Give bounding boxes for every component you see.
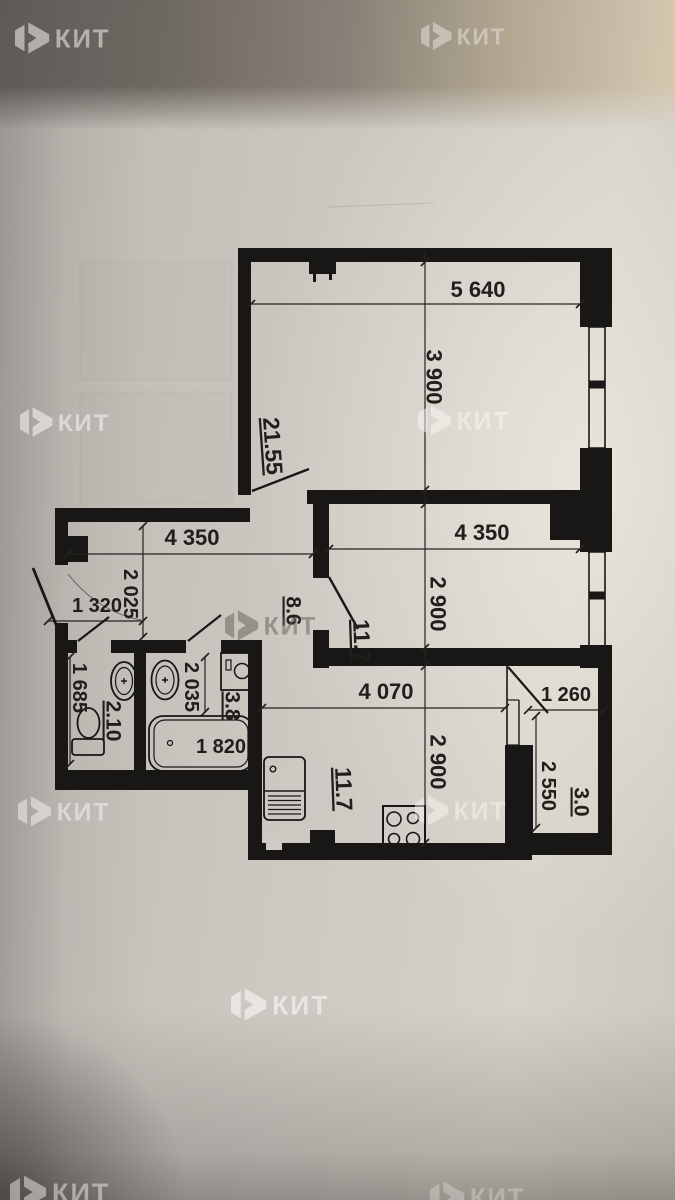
kit-watermark: КИТ (421, 22, 506, 50)
door-swings (33, 469, 548, 713)
svg-text:КИТ: КИТ (52, 1178, 110, 1200)
svg-text:КИТ: КИТ (470, 1185, 525, 1200)
dim-hallway-width: 4 350 (164, 525, 219, 550)
kit-watermark: КИТ (430, 1181, 525, 1200)
kit-watermark: КИТ (15, 22, 110, 53)
dim-balcony-width: 1 260 (541, 684, 591, 706)
kit-logo-icon (18, 796, 51, 826)
area-bedroom: 11.7 (348, 619, 376, 663)
kit-watermark: КИТ (10, 1176, 110, 1200)
kit-logo-icon (231, 989, 266, 1021)
area-bathroom: 3.8 (221, 691, 244, 721)
svg-text:КИТ: КИТ (454, 799, 508, 826)
bath-sink-icon (152, 661, 179, 700)
svg-text:КИТ: КИТ (58, 410, 111, 437)
dim-bathroom-depth: 2 035 (180, 662, 202, 712)
kit-watermark: КИТ (418, 405, 510, 435)
svg-text:КИТ: КИТ (264, 614, 318, 641)
dim-kitchen-depth: 2 900 (425, 734, 450, 789)
dim-bedroom-depth: 2 900 (425, 576, 450, 631)
kit-watermark: КИТ (20, 407, 110, 437)
kit-logo-icon (10, 1176, 46, 1200)
dim-hallway-depth: 2 025 (119, 569, 141, 619)
dim-living-width: 5 640 (450, 277, 505, 302)
toilet-icon (72, 708, 104, 755)
svg-text:КИТ: КИТ (272, 990, 329, 1020)
photographed-floor-plan: 5 640 3 900 21.55 4 350 2 025 1 320 8.6 … (0, 0, 675, 1200)
kit-logo-icon (421, 22, 452, 50)
area-wc: 2.10 (102, 701, 125, 742)
dim-bathtub-length: 1 820 (196, 736, 246, 758)
dim-wc-depth: 1 685 (68, 663, 90, 713)
kit-watermark: КИТ (415, 795, 507, 825)
dim-entry-width: 1 320 (72, 595, 122, 617)
dim-balcony-depth: 2 550 (537, 761, 559, 811)
bedroom-window-icon (588, 552, 606, 645)
living-room-window-icon (588, 327, 606, 448)
kit-logo-icon (418, 405, 451, 435)
wc-sink-icon (111, 662, 137, 700)
dim-bedroom-width: 4 350 (454, 520, 509, 545)
kit-watermark: КИТ (18, 796, 110, 826)
bathroom-door-leaf (188, 615, 221, 641)
dim-kitchen-width: 4 070 (358, 679, 413, 704)
kitchen-sink-icon (264, 757, 305, 820)
svg-text:КИТ: КИТ (55, 26, 110, 54)
kit-watermark: КИТ (225, 610, 317, 640)
area-kitchen: 11.7 (330, 767, 358, 811)
area-balcony: 3.0 (570, 787, 593, 816)
kit-watermark: КИТ (231, 989, 329, 1021)
svg-text:КИТ: КИТ (457, 409, 511, 436)
kit-logo-icon (225, 610, 258, 640)
entry-door-leaf (33, 568, 57, 627)
kit-logo-icon (415, 795, 448, 825)
kit-logo-icon (15, 22, 49, 53)
svg-text:КИТ: КИТ (457, 24, 507, 50)
floor-plan-drawing: 5 640 3 900 21.55 4 350 2 025 1 320 8.6 … (0, 0, 675, 1200)
kit-logo-icon (20, 407, 52, 437)
kit-logo-icon (430, 1181, 464, 1200)
area-living-room: 21.55 (258, 416, 288, 475)
dim-living-depth: 3 900 (421, 349, 446, 404)
svg-text:КИТ: КИТ (57, 800, 111, 827)
